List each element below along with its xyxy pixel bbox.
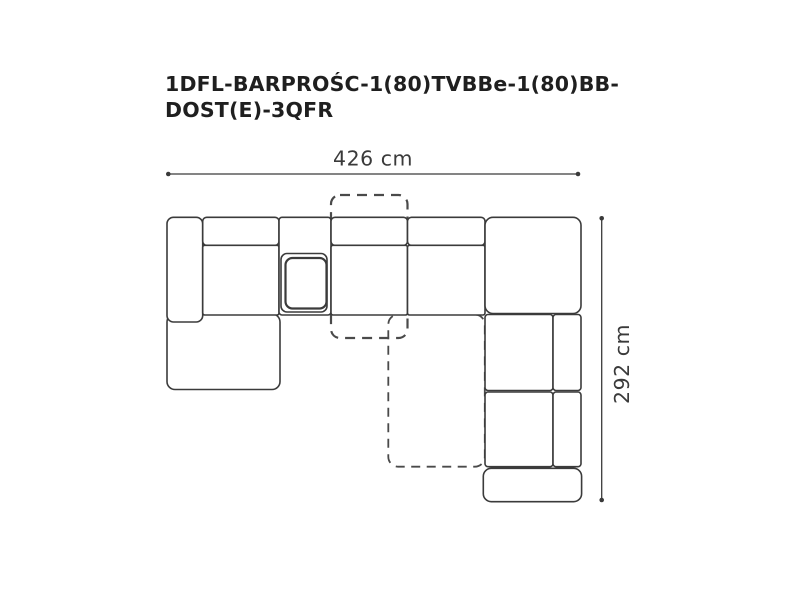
height-dimension-dot-top <box>599 216 604 221</box>
corner-module <box>485 217 581 313</box>
seat-segment-2-tv-function <box>331 245 408 315</box>
height-dimension-dot-bottom <box>599 498 604 503</box>
right-seat-1 <box>485 315 553 391</box>
height-dimension: 292 cm <box>599 216 634 502</box>
width-dimension: 426 cm <box>166 147 580 177</box>
seat-segment-3 <box>408 245 486 315</box>
width-dimension-dot-left <box>166 172 171 177</box>
longchair-left-module <box>167 314 280 390</box>
backrest-segment-2 <box>331 217 408 245</box>
sofa-top-view-diagram: 426 cm 292 cm <box>0 0 800 600</box>
backrest-segment-3 <box>408 217 486 245</box>
seat-segment-1 <box>203 245 279 315</box>
width-dimension-dot-right <box>576 172 581 177</box>
sofa-dimension-diagram-page: 1DFL-BARPROŚC-1(80)TVBBe-1(80)BB- DOST(E… <box>0 0 800 600</box>
bottom-armrest <box>483 468 581 501</box>
left-armrest <box>167 217 203 322</box>
width-dimension-label: 426 cm <box>333 147 413 171</box>
right-seat-2 <box>485 392 553 467</box>
right-backrest-2 <box>553 392 581 467</box>
backrest-segment-1 <box>203 217 279 245</box>
right-backrest-1 <box>553 315 581 391</box>
height-dimension-label: 292 cm <box>610 324 634 404</box>
bar-module-cell <box>279 217 331 315</box>
sofa-outline <box>167 217 582 501</box>
